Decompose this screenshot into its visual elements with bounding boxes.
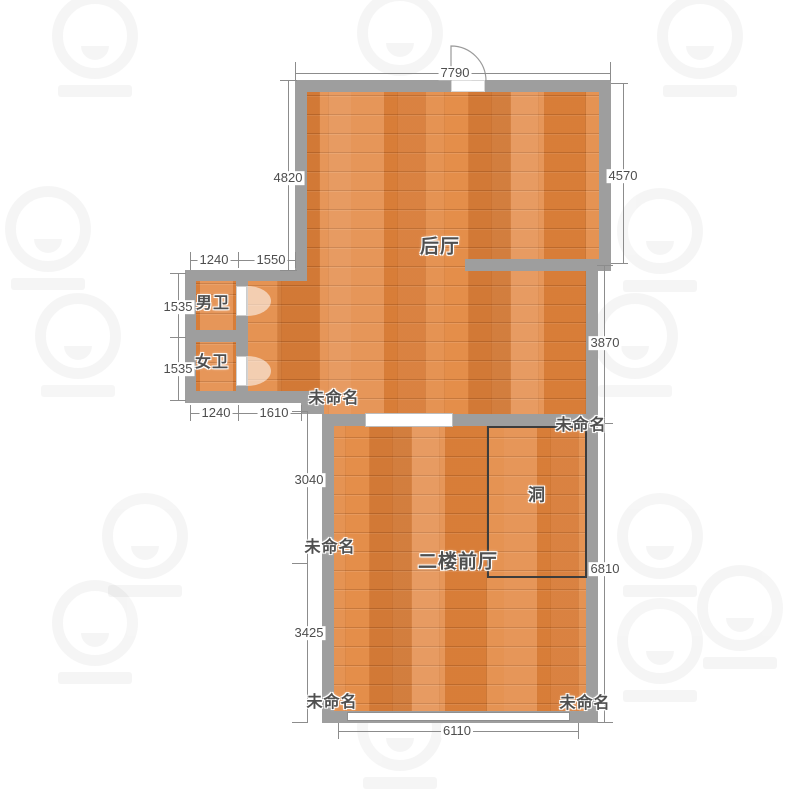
wall-left-upper[interactable]: [295, 92, 307, 281]
dimension-tick: [338, 723, 339, 739]
room-label: 女卫: [195, 348, 229, 372]
brand-watermark-icon: [617, 493, 703, 597]
dimension-tick: [190, 405, 191, 421]
brand-watermark-icon: [35, 293, 121, 397]
brand-watermark-icon: [697, 565, 783, 669]
floor-plan-canvas: 后厅男卫女卫未命名未命名洞未命名二楼前厅未命名未命名 7790482045701…: [0, 0, 800, 800]
room-label: 后厅: [420, 232, 460, 259]
dimension-tick: [295, 62, 296, 81]
dimension-label: 3870: [589, 336, 622, 350]
dimension-tick: [295, 252, 296, 268]
dimension-label: 1550: [255, 253, 288, 267]
dimension-tick: [170, 400, 186, 401]
dimension-tick: [170, 337, 186, 338]
dimension-tick: [611, 263, 628, 264]
dimension-tick: [190, 252, 191, 270]
dimension-tick: [238, 405, 239, 421]
room-label: 未命名: [306, 688, 357, 712]
mens-wc-door-leaf[interactable]: [236, 286, 247, 316]
dimension-label: 6110: [441, 724, 473, 738]
dimension-tick: [610, 62, 611, 81]
dimension-label: 3040: [293, 473, 326, 487]
window-bottom[interactable]: [347, 712, 570, 721]
dimension-tick: [292, 563, 308, 564]
room-label: 洞: [528, 481, 546, 506]
dimension-label: 1535: [162, 300, 195, 314]
dimension-tick: [301, 405, 302, 421]
dimension-label: 1240: [198, 253, 231, 267]
dimension-label: 1535: [162, 362, 195, 376]
brand-watermark-icon: [52, 0, 138, 97]
dimension-label: 4820: [272, 171, 305, 185]
wall-left-lower[interactable]: [322, 414, 334, 723]
dimension-label: 3425: [293, 626, 326, 640]
dimension-tick: [292, 411, 308, 412]
room-label: 二楼前厅: [418, 547, 498, 574]
brand-watermark-icon: [52, 580, 138, 684]
passage-opening[interactable]: [365, 413, 453, 427]
womens-wc-door-leaf[interactable]: [236, 356, 247, 386]
brand-watermark-icon: [617, 598, 703, 702]
room-label: 未命名: [308, 384, 359, 408]
dimension-tick: [292, 722, 308, 723]
brand-watermark-icon: [102, 493, 188, 597]
dimension-label: 7790: [439, 66, 472, 80]
wall-bath-bottom[interactable]: [185, 391, 313, 403]
dimension-label: 4570: [607, 169, 640, 183]
room-label: 未命名: [304, 533, 355, 557]
dimension-label: 1240: [200, 406, 233, 420]
brand-watermark-icon: [5, 186, 91, 290]
dimension-tick: [597, 265, 613, 266]
dimension-tick: [611, 83, 628, 84]
dimension-tick: [280, 270, 297, 271]
wall-bath-top[interactable]: [185, 270, 307, 281]
brand-watermark-icon: [657, 0, 743, 97]
room-label: 男卫: [196, 289, 230, 313]
room-label: 未命名: [559, 689, 610, 713]
wall-step[interactable]: [465, 259, 599, 271]
dimension-tick: [238, 252, 239, 268]
dimension-tick: [578, 723, 579, 739]
dimension-tick: [597, 722, 613, 723]
room-label: 未命名: [555, 411, 606, 435]
brand-watermark-icon: [617, 188, 703, 292]
dimension-label: 1610: [258, 406, 291, 420]
dimension-label: 6810: [589, 562, 622, 576]
dimension-tick: [170, 273, 186, 274]
wall-bath-divider[interactable]: [196, 330, 248, 342]
dimension-tick: [280, 80, 297, 81]
